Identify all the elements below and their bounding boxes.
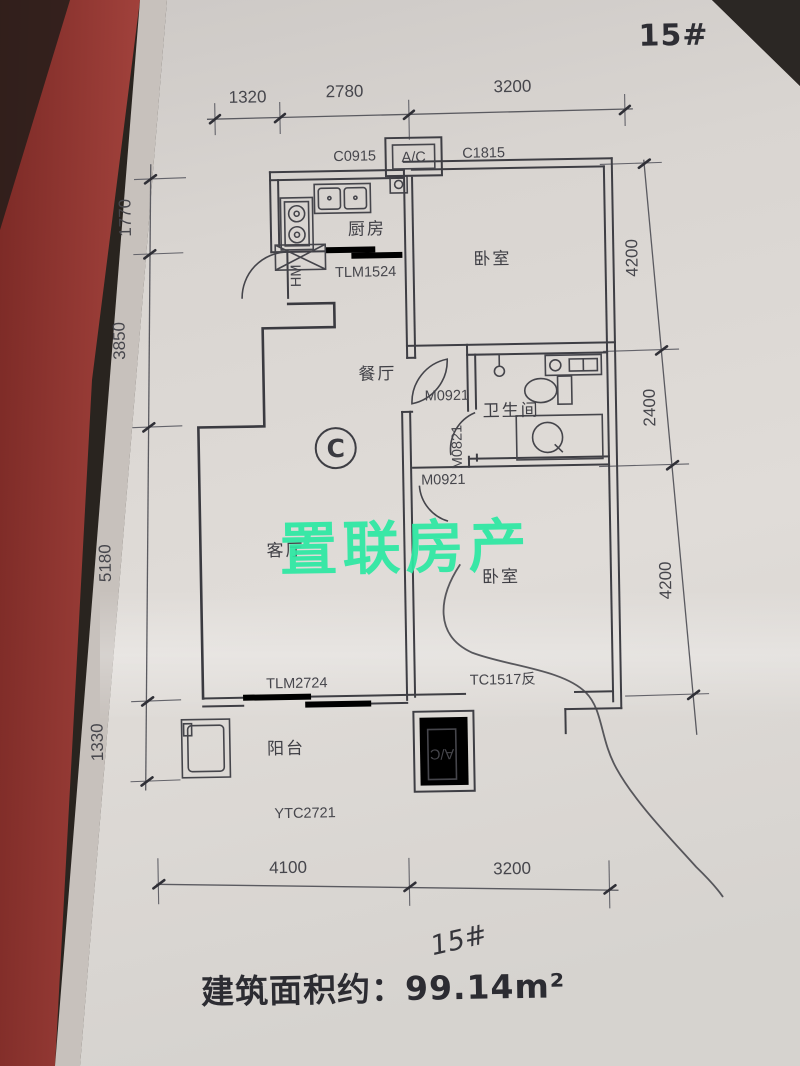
dim-left-1: 1770 [115, 199, 135, 237]
balcony-label: 阳台 [267, 739, 305, 760]
dim-top-1: 1320 [229, 87, 267, 107]
bathroom-label: 卫生间 [482, 401, 539, 422]
unit-type-letter: C [326, 434, 345, 463]
dim-left-4: 1330 [88, 723, 108, 761]
page-title: 15# [638, 18, 708, 54]
dim-top-2: 2780 [325, 82, 363, 102]
bathroom-door-label: M0821 [449, 425, 466, 470]
photo-canvas: 15# 1320 2780 3200 [0, 0, 800, 1066]
paper-sheen [100, 590, 800, 720]
watermark-text: 置联房产 [279, 512, 532, 584]
kitchen-door-label: TLM1524 [335, 264, 397, 281]
ac-bottom-label: A/C [430, 745, 454, 761]
dim-bottom-1: 4100 [269, 858, 307, 878]
dim-right-2: 2400 [640, 389, 660, 427]
hall-door-label: M0921 [425, 388, 470, 405]
bedroom-bottom-window-label: TC1517反 [470, 671, 536, 689]
dim-top-3: 3200 [493, 77, 531, 97]
area-text: 建筑面积约：99.14m² [201, 966, 566, 1011]
kitchen-window-label: C0915 [333, 148, 376, 165]
dim-left-3: 5180 [95, 544, 115, 582]
balcony-window-label: YTC2721 [274, 805, 336, 822]
dining-label: 餐厅 [358, 364, 396, 385]
kitchen-label: 厨房 [348, 219, 386, 240]
bedroom-top-window-label: C1815 [462, 145, 505, 162]
ac-top-label: A/C [401, 149, 425, 165]
dim-right-3: 4200 [656, 561, 676, 599]
living-balcony-door-label: TLM2724 [266, 675, 328, 692]
bedroom-bottom-door-label: M0921 [421, 472, 466, 489]
entry-door-label: HM [289, 264, 305, 287]
dim-bottom-2: 3200 [493, 859, 531, 879]
ac-unit-bottom: A/C [413, 711, 474, 792]
dim-right-1: 4200 [622, 239, 642, 277]
floorplan-photo: 15# 1320 2780 3200 [0, 0, 800, 1066]
dim-left-2: 3850 [110, 322, 130, 360]
bedroom-top-label: 卧室 [473, 249, 511, 270]
